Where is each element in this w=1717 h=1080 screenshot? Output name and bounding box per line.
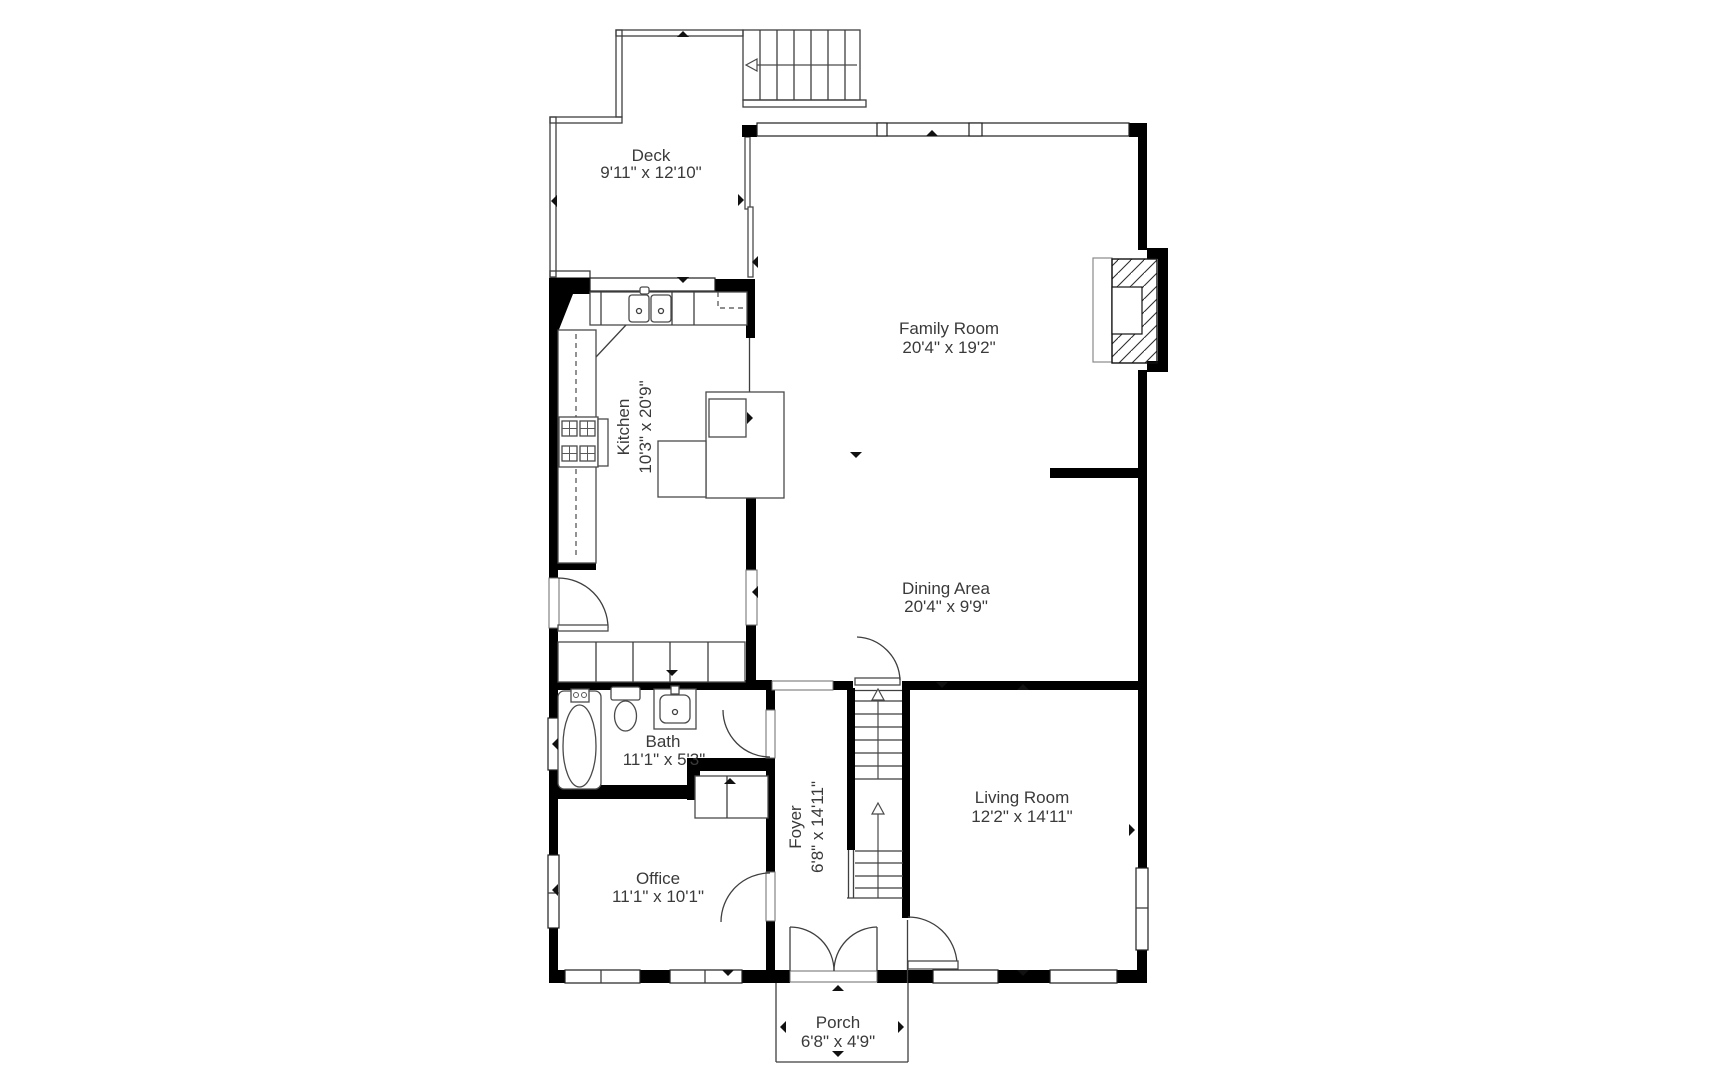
office-door <box>721 872 775 922</box>
bathtub <box>558 689 601 789</box>
office-dims: 11'1" x 10'1" <box>612 887 704 906</box>
kitchen-faucet <box>640 287 649 294</box>
family-room-label: Family Room <box>899 319 999 338</box>
living-room-dims: 12'2" x 14'11" <box>971 807 1072 826</box>
toilet <box>611 687 640 731</box>
bath-sink <box>654 686 696 729</box>
office-label: Office <box>636 869 680 888</box>
office-front-window-1 <box>565 970 640 983</box>
foyer-label: Foyer <box>786 805 805 849</box>
kitchen-dining-passthrough <box>746 570 757 625</box>
stove <box>559 417 608 467</box>
foyer-dims: 6'8" x 14'11" <box>808 781 827 873</box>
bath-dims: 11'1" x 5'3" <box>623 750 706 769</box>
porch-dims: 6'8" x 4'9" <box>801 1032 875 1051</box>
family-room-dims: 20'4" x 19'2" <box>902 338 995 357</box>
floor-plan: Deck 9'11" x 12'10" Family Room 20'4" x … <box>0 0 1717 1080</box>
bath-door <box>723 710 775 758</box>
dining-area-dims: 20'4" x 9'9" <box>904 597 988 616</box>
dining-foyer-opening <box>772 681 833 690</box>
kitchen-window <box>590 278 715 291</box>
bath-label: Bath <box>646 732 681 751</box>
kitchen-side-door <box>549 578 608 631</box>
porch-label: Porch <box>816 1013 860 1032</box>
firebox <box>1112 287 1142 334</box>
main-stairs <box>847 689 903 898</box>
deck-stairs <box>743 30 866 107</box>
deck-dims: 9'11" x 12'10" <box>600 163 701 182</box>
living-room-front-window-2 <box>1050 970 1117 983</box>
living-room-front-window-1 <box>933 970 998 983</box>
fireplace <box>1093 258 1157 363</box>
kitchen-island <box>658 392 784 498</box>
kitchen-dims: 10'3" x 20'9" <box>636 380 655 473</box>
stair-door <box>855 637 900 685</box>
stairs-up-arrow-2 <box>872 803 884 814</box>
openings <box>746 570 833 690</box>
closet-row <box>558 642 745 682</box>
stair-direction-arrow <box>746 59 757 71</box>
living-room-label: Living Room <box>975 788 1070 807</box>
sliding-door <box>745 137 753 392</box>
family-room-window-band <box>757 123 1129 136</box>
dining-area-label: Dining Area <box>902 579 990 598</box>
walls <box>549 123 1168 983</box>
fireplace-hearth <box>1093 258 1112 362</box>
front-double-door <box>790 927 877 982</box>
living-room-side-window <box>1136 868 1148 950</box>
floor-plan-page: Deck 9'11" x 12'10" Family Room 20'4" x … <box>0 0 1717 1080</box>
kitchen-label: Kitchen <box>614 399 633 456</box>
